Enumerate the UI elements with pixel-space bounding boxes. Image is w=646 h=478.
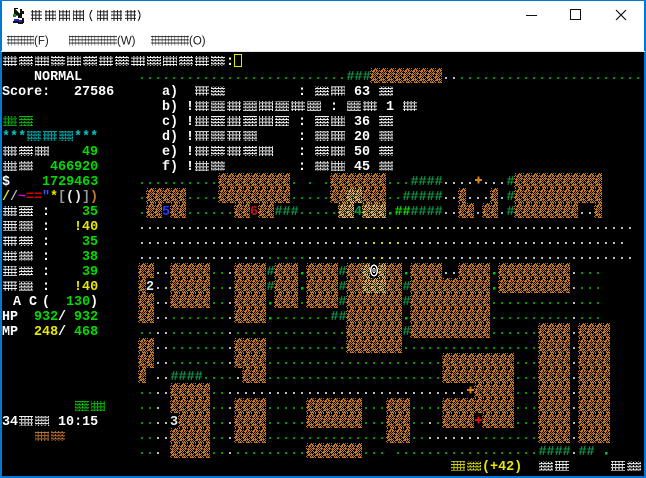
svg-text:####: ####	[539, 445, 571, 460]
svg-text::: :	[42, 280, 50, 295]
svg-text:27586: 27586	[74, 85, 114, 100]
svg-text:####: ####	[411, 205, 443, 220]
svg-text:!: !	[186, 100, 194, 115]
svg-text:####: ####	[411, 175, 443, 190]
svg-text:): )	[90, 295, 98, 310]
svg-text:!40: !40	[74, 280, 98, 295]
svg-text:##: ##	[395, 205, 411, 220]
svg-text:#: #	[507, 190, 515, 205]
svg-text:35: 35	[82, 205, 98, 220]
svg-text:468: 468	[74, 325, 98, 340]
svg-text:1729463: 1729463	[42, 175, 98, 190]
svg-text:!40: !40	[74, 220, 98, 235]
svg-text:#####: #####	[403, 190, 443, 205]
svg-text:##: ##	[331, 310, 347, 325]
svg-text:/: /	[2, 190, 10, 205]
svg-text:): )	[90, 190, 98, 205]
svg-text:49: 49	[82, 145, 98, 160]
svg-text:932: 932	[34, 310, 58, 325]
svg-text::: :	[42, 235, 50, 250]
svg-text:=: =	[34, 190, 42, 205]
svg-text:1: 1	[386, 100, 394, 115]
svg-text::: :	[298, 160, 306, 175]
svg-text:(F): (F)	[34, 36, 49, 48]
svg-text:2: 2	[146, 280, 154, 295]
svg-text:/: /	[10, 190, 18, 205]
svg-text:***: ***	[74, 130, 98, 145]
svg-text:#: #	[403, 280, 411, 295]
svg-text:(O): (O)	[189, 36, 206, 48]
svg-text:20: 20	[354, 130, 370, 145]
svg-text:932: 932	[74, 310, 98, 325]
svg-text:35: 35	[82, 235, 98, 250]
svg-text:(: (	[66, 190, 74, 205]
svg-text:#: #	[339, 295, 347, 310]
svg-text:#: #	[403, 325, 411, 340]
svg-text:f): f)	[162, 160, 178, 175]
svg-text:!: !	[186, 145, 194, 160]
svg-text:~: ~	[18, 190, 26, 205]
svg-text:b): b)	[162, 100, 178, 115]
svg-text:248: 248	[34, 325, 58, 340]
svg-text:Score:: Score:	[2, 85, 50, 100]
svg-text:63: 63	[354, 85, 370, 100]
svg-text:36: 36	[354, 115, 370, 130]
svg-text:[: [	[58, 190, 66, 205]
svg-text:#: #	[403, 295, 411, 310]
svg-text:NORMAL: NORMAL	[34, 70, 82, 85]
svg-text::: :	[42, 265, 50, 280]
svg-text:6: 6	[250, 205, 258, 220]
svg-text:###: ###	[347, 70, 371, 85]
svg-text:###: ###	[275, 205, 299, 220]
svg-text:50: 50	[354, 145, 370, 160]
svg-text::: :	[42, 250, 50, 265]
svg-text:=: =	[26, 190, 34, 205]
svg-text::: :	[42, 205, 50, 220]
svg-text:a): a)	[162, 85, 178, 100]
svg-text::: :	[298, 130, 306, 145]
svg-text:3: 3	[170, 415, 178, 430]
svg-text:#: #	[267, 265, 275, 280]
svg-text:/: /	[58, 310, 66, 325]
svg-text:34: 34	[2, 415, 18, 430]
svg-text::: :	[298, 85, 306, 100]
svg-text:A: A	[13, 295, 22, 310]
svg-text::: :	[298, 145, 306, 160]
svg-text:d): d)	[162, 130, 178, 145]
svg-text:466920: 466920	[50, 160, 98, 175]
svg-text:#: #	[507, 205, 515, 220]
svg-text:10:15: 10:15	[58, 415, 98, 430]
svg-text:]: ]	[82, 190, 90, 205]
svg-text:#: #	[507, 175, 515, 190]
svg-text:C: C	[29, 295, 37, 310]
svg-text:39: 39	[82, 265, 98, 280]
svg-text:!: !	[186, 115, 194, 130]
svg-text:***: ***	[2, 130, 26, 145]
svg-text:): )	[74, 190, 82, 205]
svg-text:4: 4	[354, 205, 362, 220]
svg-text:/: /	[58, 325, 66, 340]
svg-text:c): c)	[162, 115, 178, 130]
svg-text:####: ####	[171, 370, 203, 385]
svg-text:130: 130	[66, 295, 90, 310]
svg-text::: :	[42, 220, 50, 235]
svg-text:#: #	[339, 265, 347, 280]
svg-text:": "	[42, 190, 50, 205]
svg-text:45: 45	[354, 160, 370, 175]
svg-text:!: !	[186, 160, 194, 175]
svg-text::: :	[330, 100, 338, 115]
svg-text:(W): (W)	[117, 36, 136, 48]
svg-text:$: $	[2, 175, 10, 190]
svg-text:##: ##	[579, 445, 595, 460]
svg-text:#: #	[267, 280, 275, 295]
svg-text:(: (	[42, 295, 50, 310]
svg-text::: :	[298, 115, 306, 130]
svg-text::: :	[226, 55, 234, 70]
svg-text:*: *	[50, 190, 58, 205]
svg-text:!: !	[186, 130, 194, 145]
svg-text:e): e)	[162, 145, 178, 160]
svg-text:MP: MP	[2, 325, 18, 340]
svg-text:#: #	[339, 280, 347, 295]
svg-text:38: 38	[82, 250, 98, 265]
svg-text:(+42): (+42)	[482, 460, 522, 475]
svg-text:5: 5	[162, 205, 170, 220]
svg-text:HP: HP	[2, 310, 18, 325]
